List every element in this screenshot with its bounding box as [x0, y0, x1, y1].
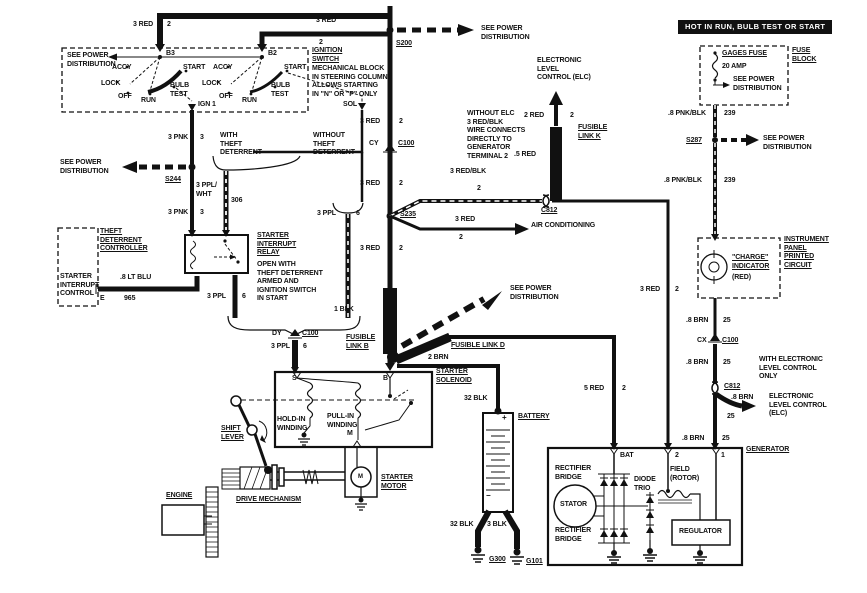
wire-1blk: 1 BLK — [334, 306, 354, 315]
terminal-b2: B2 — [268, 50, 277, 59]
charge-indicator-color: (RED) — [732, 274, 751, 283]
terminal-1: 1 — [721, 452, 725, 461]
gages-fuse: GAGES FUSE — [722, 50, 767, 59]
starter-solenoid-box — [241, 372, 432, 447]
connector-dy-c100: C100 — [302, 330, 318, 339]
connector-cy-c100: C100 — [398, 140, 414, 149]
with-theft-deterrent: WITH THEFT DETERRENT — [220, 132, 262, 158]
sw2-accy: ACCY — [213, 64, 232, 73]
wire-3ppl-relay: 3 PPL — [207, 293, 226, 302]
fusible-link-d: FUSIBLE LINK D — [451, 342, 505, 351]
wire-ckt2-gen: 2 — [675, 286, 679, 295]
see-power-dist-s244: SEE POWER DISTRIBUTION — [60, 159, 109, 176]
sw2-start: START — [284, 64, 306, 73]
starter-interrupt-relay-box — [185, 235, 248, 273]
diode-trio: DIODE TRIO — [634, 476, 656, 493]
wire-8ltblu: .8 LT BLU — [120, 274, 151, 283]
wire-ckt2-top-left: 2 — [167, 21, 171, 30]
sw1-start: START — [183, 64, 205, 73]
elc-right: ELECTRONIC LEVEL CONTROL (ELC) — [769, 393, 827, 419]
ign1-branch — [122, 110, 196, 237]
drive-mechanism: DRIVE MECHANISM — [236, 496, 301, 505]
wire-ckt3-upper: 3 — [200, 134, 204, 143]
wire-ckt2-trunk1: 2 — [399, 118, 403, 127]
terminal-b3: B3 — [166, 50, 175, 59]
wiring-diagram-page: 3 RED23 RED2S200SEE POWER DISTRIBUTIONB3… — [0, 0, 867, 593]
drive-mechanism-art — [162, 396, 345, 557]
terminal-m: M — [347, 430, 353, 439]
wire-3pnk-lower: 3 PNK — [168, 209, 188, 218]
trunk-connectors — [383, 91, 672, 450]
wire-8brn-elc: .8 BRN — [731, 394, 753, 403]
see-power-dist-top: SEE POWER DISTRIBUTION — [481, 25, 530, 42]
see-power-dist-s287: SEE POWER DISTRIBUTION — [763, 135, 812, 152]
wire-ckt2-2red: 2 — [570, 112, 574, 121]
wire-ckt239-1: 239 — [724, 110, 735, 119]
splice-s287: S287 — [686, 137, 702, 146]
wire-ckt25-1: 25 — [723, 317, 731, 326]
starter-solenoid-title: STARTER SOLENOID — [436, 368, 472, 385]
wire-2red: 2 RED — [524, 112, 544, 121]
wire-3red-trunk2: 3 RED — [360, 180, 380, 189]
sw2-run: RUN — [242, 97, 257, 106]
wire-ckt25-3: 25 — [722, 435, 730, 444]
sw2-lock: LOCK — [202, 80, 221, 89]
sw2-off: OFF — [219, 93, 233, 102]
battery-minus: − — [486, 492, 491, 501]
wire-ckt306: 306 — [231, 197, 242, 206]
sw1-lock: LOCK — [101, 80, 120, 89]
wire-3red-gen: 3 RED — [640, 286, 660, 295]
sw1-run: RUN — [141, 97, 156, 106]
ground-g101: G101 — [526, 558, 543, 567]
theft-deterrent-controller: THEFT DETERRENT CONTROLLER — [100, 228, 148, 254]
wire-8brn-1: .8 BRN — [686, 317, 708, 326]
wire-5red-bat: 5 RED — [584, 385, 604, 394]
wire-3red-blk: 3 RED/BLK — [450, 168, 486, 177]
wire-ckt2-trunk2: 2 — [399, 180, 403, 189]
stator: STATOR — [560, 501, 587, 510]
wire-ckt2-ac: 2 — [459, 234, 463, 243]
wire-3pnk-upper: 3 PNK — [168, 134, 188, 143]
fuse-amp: 20 AMP — [722, 63, 746, 72]
splice-s235: S235 — [400, 211, 416, 220]
wire-3red-trunk1: 3 RED — [360, 118, 380, 127]
connector-c812-mid: C812 — [541, 207, 557, 216]
regulator: REGULATOR — [679, 528, 722, 537]
engine-title: ENGINE — [166, 492, 192, 501]
splice-s244: S244 — [165, 176, 181, 185]
elc-top: ELECTRONIC LEVEL CONTROL (ELC) — [537, 57, 591, 83]
see-power-dist-ign: SEE POWER DISTRIBUTION — [67, 52, 116, 69]
terminal-s: S — [292, 375, 297, 384]
hot-banner: HOT IN RUN, BULB TEST OR START — [678, 20, 832, 34]
wire-2brn: 2 BRN — [428, 354, 449, 363]
rectifier-bridge-top: RECTIFIER BRIDGE — [555, 465, 591, 482]
terminal-2: 2 — [675, 452, 679, 461]
wire-8brn-3: .8 BRN — [682, 435, 704, 444]
wire-ckt6-wo: 6 — [356, 210, 360, 219]
battery-title: BATTERY — [518, 413, 550, 422]
fusible-link-k: FUSIBLE LINK K — [578, 124, 607, 141]
hold-in-winding: HOLD-IN WINDING — [277, 416, 307, 433]
charge-indicator: "CHARGE" INDICATOR — [732, 254, 769, 271]
see-power-dist-fuse: SEE POWER DISTRIBUTION — [733, 76, 782, 93]
connector-cx: CX — [697, 337, 707, 346]
wire-32blk-bot: 32 BLK — [450, 521, 474, 530]
with-elc-note: WITH ELECTRONIC LEVEL CONTROL ONLY — [759, 356, 823, 382]
field-rotor: FIELD (ROTOR) — [670, 466, 699, 483]
ground-g300: G300 — [489, 556, 506, 565]
wire-8pnkblk-1: .8 PNK/BLK — [668, 110, 706, 119]
terminal-ign1: IGN 1 — [198, 101, 216, 110]
wire-5red-small: .5 RED — [514, 151, 536, 160]
instrument-panel: INSTRUMENT PANEL PRINTED CIRCUIT — [784, 236, 829, 270]
shift-lever: SHIFT LEVER — [221, 425, 244, 442]
ignition-switch-desc: MECHANICAL BLOCK IN STEERING COLUMN ALLO… — [312, 65, 388, 99]
starter-motor-title: STARTER MOTOR — [381, 474, 413, 491]
fusible-link-b: FUSIBLE LINK B — [346, 334, 375, 351]
wire-8pnkblk-2: .8 PNK/BLK — [664, 177, 702, 186]
wire-3red-ac: 3 RED — [455, 216, 475, 225]
wire-32blk-top: 32 BLK — [464, 395, 488, 404]
wire-3ppl-wht: 3 PPL/ WHT — [196, 182, 217, 199]
wire-3blk: 3 BLK — [487, 521, 507, 530]
generator-title: GENERATOR — [746, 446, 789, 455]
motor-m: M — [358, 473, 363, 482]
fuse-block: FUSE BLOCK — [792, 47, 816, 64]
rectifier-bridge-bottom: RECTIFIER BRIDGE — [555, 527, 591, 544]
splice-s200: S200 — [396, 40, 412, 49]
wire-3red-top-mid: 3 RED — [316, 17, 336, 26]
sw2-bulb-test: BULB TEST — [271, 82, 290, 99]
pull-in-winding: PULL-IN WINDING — [327, 413, 357, 430]
wire-3red-top-left: 3 RED — [133, 21, 153, 30]
see-power-dist-mid: SEE POWER DISTRIBUTION — [510, 285, 559, 302]
starter-interrupt-relay-desc: OPEN WITH THEFT DETERRENT ARMED AND IGNI… — [257, 261, 323, 304]
wire-3red-trunk3: 3 RED — [360, 245, 380, 254]
wire-8brn-2: .8 BRN — [686, 359, 708, 368]
wire-ckt25-elc: 25 — [727, 413, 735, 422]
connector-cx-c100: C100 — [722, 337, 738, 346]
wire-ckt2-redblk: 2 — [477, 185, 481, 194]
ignition-switch-title: IGNITION SWITCH — [312, 47, 342, 64]
connector-cy: CY — [369, 140, 379, 149]
wire-ckt2-5red: 2 — [622, 385, 626, 394]
wire-ckt6-relay: 6 — [242, 293, 246, 302]
terminal-b: B — [383, 375, 388, 384]
without-theft-deterrent: WITHOUT THEFT DETERRENT — [313, 132, 355, 158]
starter-interrupt-relay-title: STARTER INTERRUPT RELAY — [257, 232, 296, 258]
terminal-bat: BAT — [620, 452, 634, 461]
wire-3ppl-wo: 3 PPL — [317, 210, 336, 219]
wire-ckt6-sol: 6 — [303, 343, 307, 352]
battery-box — [471, 413, 524, 564]
wire-ckt2-trunk3: 2 — [399, 245, 403, 254]
wire-ckt3-lower: 3 — [200, 209, 204, 218]
air-conditioning: AIR CONDITIONING — [531, 222, 595, 231]
wire-3ppl-sol: 3 PPL — [271, 343, 290, 352]
sw1-bulb-test: BULB TEST — [170, 82, 189, 99]
battery-plus: + — [502, 414, 507, 423]
terminal-e: E — [100, 295, 105, 304]
connector-c812-right: C812 — [724, 383, 740, 392]
connector-dy: DY — [272, 330, 282, 339]
terminal-sol: SOL — [343, 101, 357, 110]
wire-ckt239-2: 239 — [724, 177, 735, 186]
starter-interrupt-control: STARTER INTERRUPT CONTROL — [60, 273, 99, 299]
wire-ckt25-2: 25 — [723, 359, 731, 368]
sw1-off: OFF — [118, 93, 132, 102]
wire-ckt965: 965 — [124, 295, 135, 304]
sw1-accy: ACCY — [112, 64, 131, 73]
